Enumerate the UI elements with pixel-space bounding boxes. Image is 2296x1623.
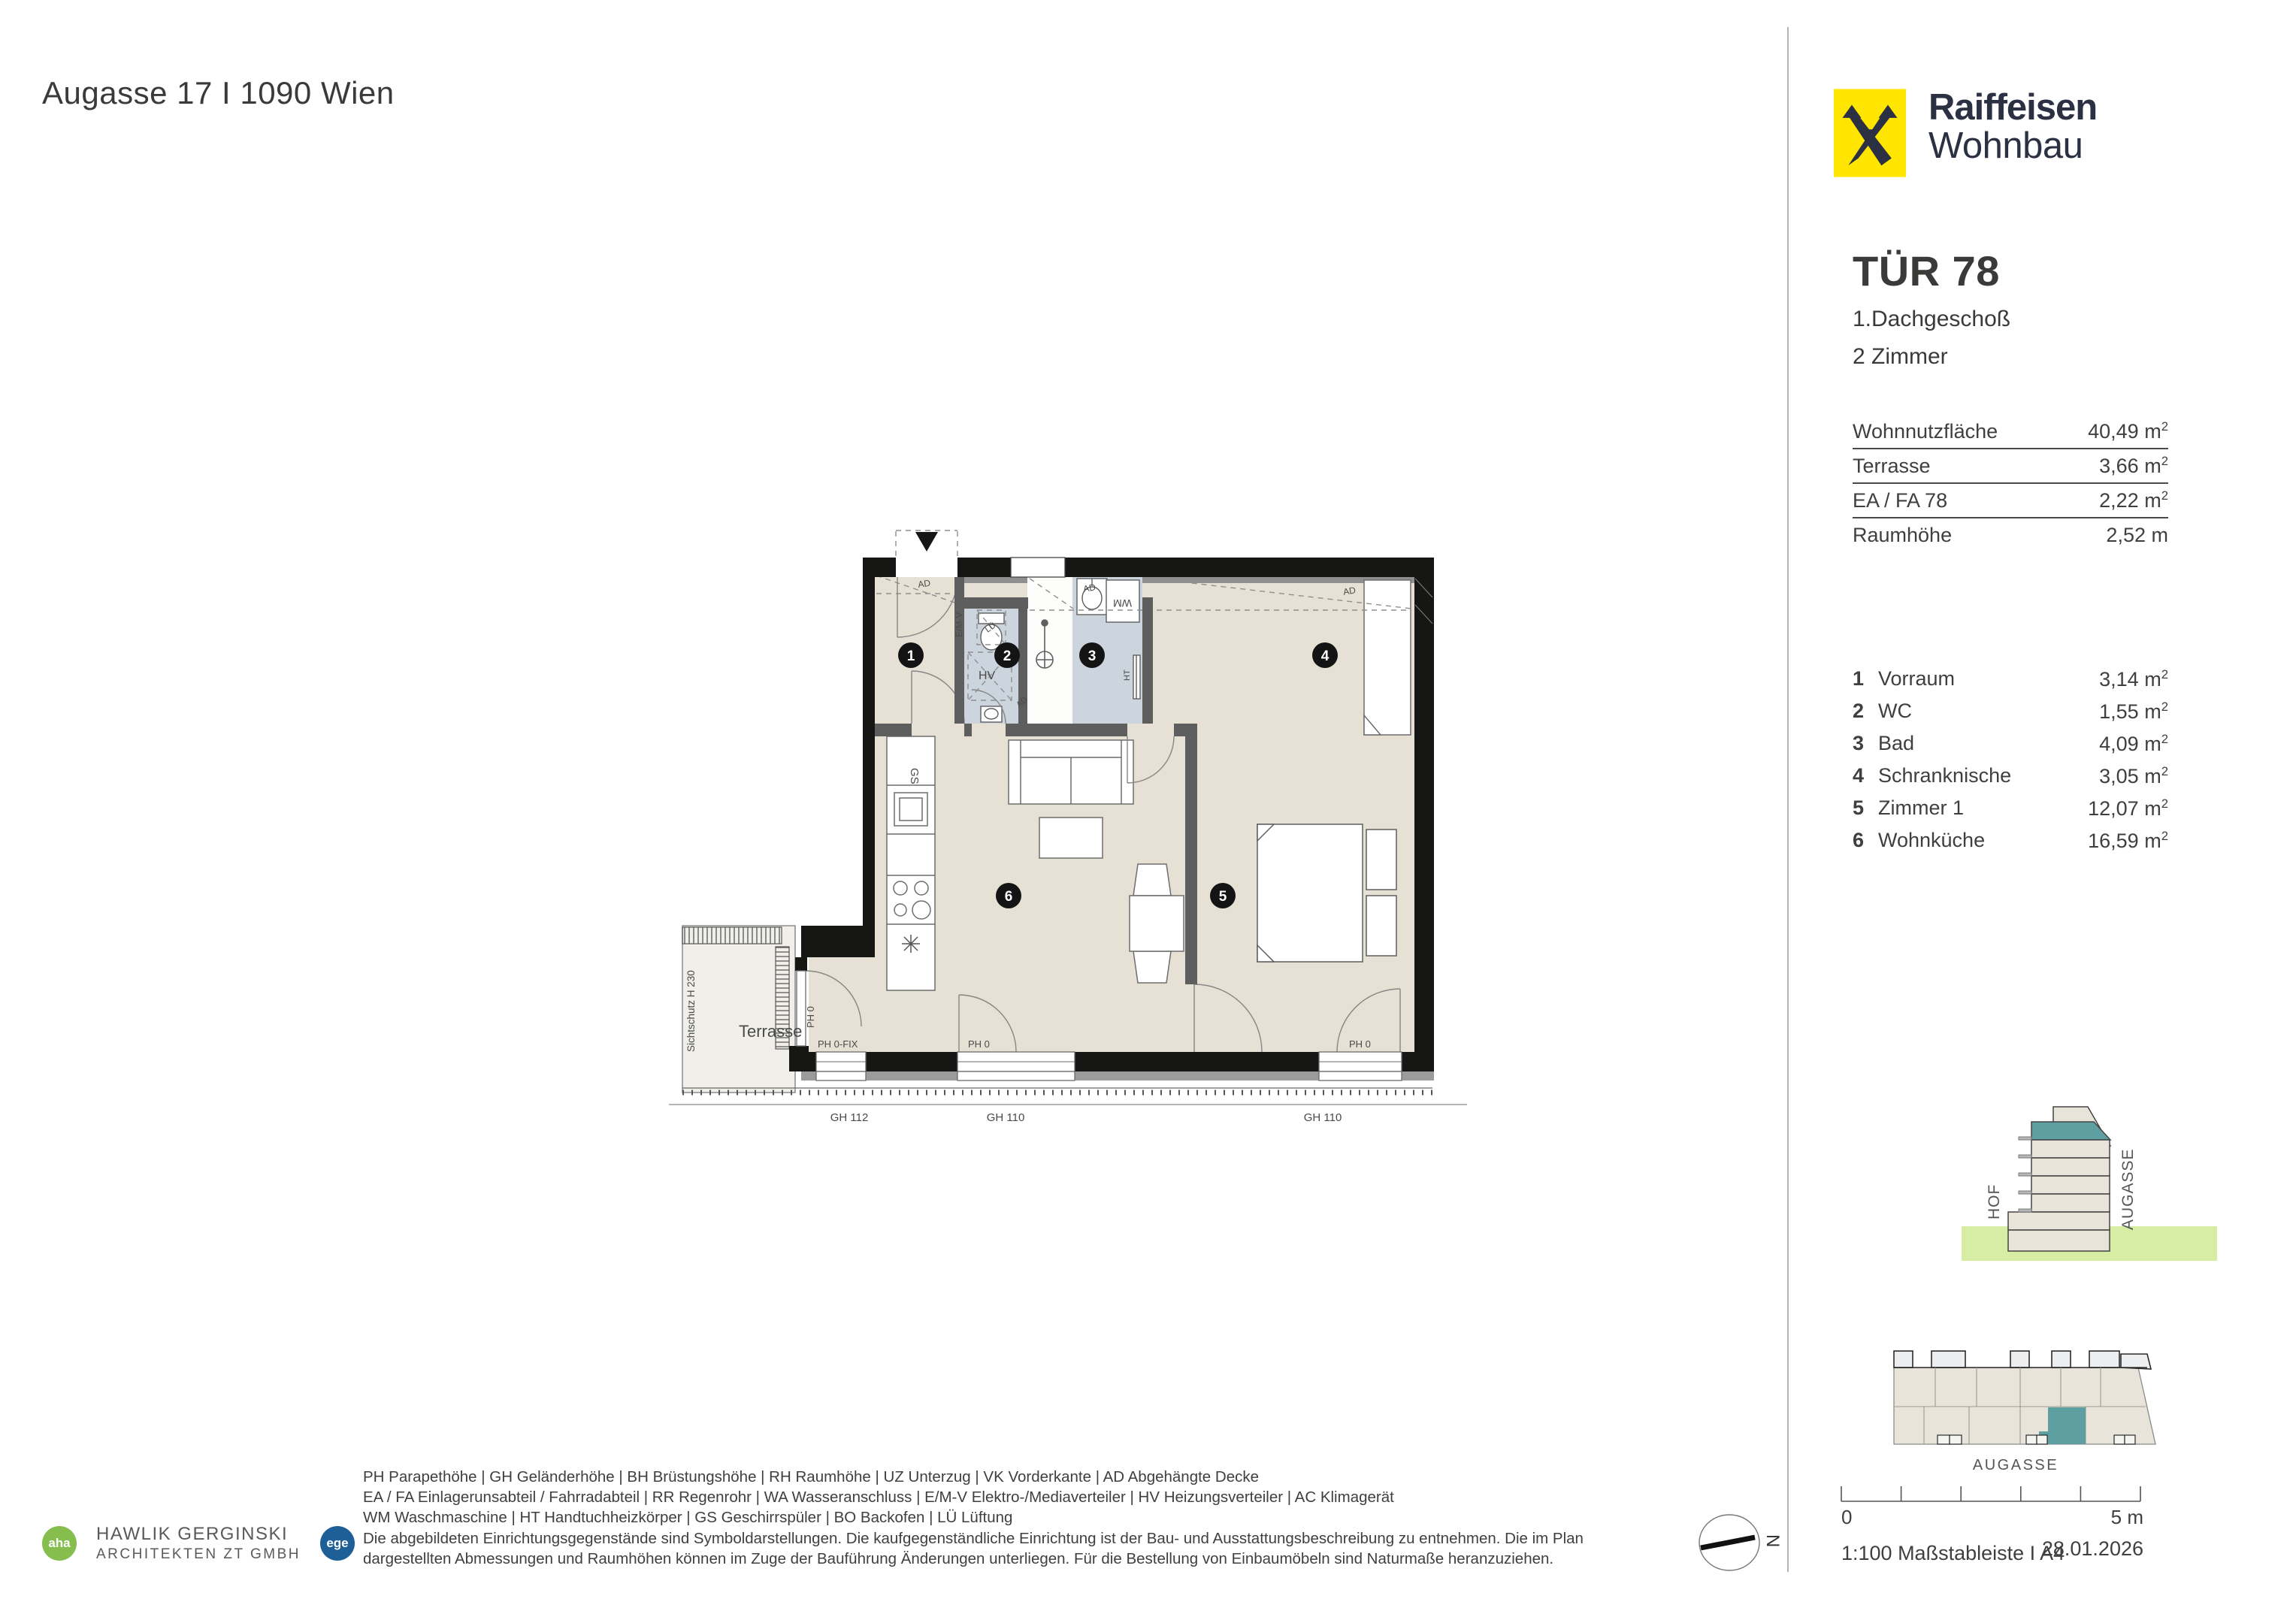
sofa-icon bbox=[1009, 740, 1133, 804]
list-item: 1 Vorraum 3,14 m2 bbox=[1853, 663, 2168, 695]
unit-floor: 1.Dachgeschoß bbox=[1853, 307, 2010, 332]
row-unit: m bbox=[2144, 489, 2161, 512]
ad-label: AD bbox=[1342, 585, 1357, 597]
balconies bbox=[2019, 1137, 2031, 1212]
terrace-label: Terrasse bbox=[739, 1022, 802, 1041]
room-unit: m bbox=[2144, 668, 2161, 691]
room-list: 1 Vorraum 3,14 m2 2 WC 1,55 m2 3 Bad 4,0… bbox=[1853, 663, 2168, 857]
room-unit-sup: 2 bbox=[2161, 796, 2168, 811]
list-item: 5 Zimmer 1 12,07 m2 bbox=[1853, 792, 2168, 824]
gh-label: GH 110 bbox=[1304, 1111, 1342, 1124]
room-area: 1,55 bbox=[2099, 700, 2139, 723]
privacy-screen-label: Sichtschutz H 230 bbox=[685, 970, 697, 1052]
room-unit-sup: 2 bbox=[2161, 829, 2168, 843]
plan-sheet: { "page": { "title": "Augasse 17 I 1090 … bbox=[0, 0, 2296, 1623]
row-label: EA / FA 78 bbox=[1853, 489, 1947, 512]
room-name: WC bbox=[1878, 700, 2099, 723]
list-item: 4 Schranknische 3,05 m2 bbox=[1853, 760, 2168, 792]
table-row: Terrasse 3,66 m2 bbox=[1853, 449, 2168, 484]
room-area: 12,07 bbox=[2088, 797, 2139, 820]
room-number: 4 bbox=[1853, 764, 1878, 787]
legend-line: Die abgebildeten Einrichtungsgegenstände… bbox=[363, 1528, 1686, 1549]
row-unit: m bbox=[2144, 420, 2161, 443]
floor-plan: Terrasse Sichtschutz H 230 PH 0 PH 0-FIX… bbox=[669, 526, 1481, 1187]
scale-bar-start: 0 bbox=[1841, 1506, 1852, 1529]
room-area: 4,09 bbox=[2099, 733, 2139, 755]
row-label: Wohnnutzfläche bbox=[1853, 420, 1998, 443]
roof-terraces bbox=[1894, 1351, 2151, 1369]
ph-label: PH 0 bbox=[805, 1006, 816, 1028]
room-marker-label: 1 bbox=[907, 648, 915, 664]
aha-logo: aha bbox=[42, 1526, 77, 1561]
room-number: 3 bbox=[1853, 732, 1878, 755]
room-number: 6 bbox=[1853, 829, 1878, 852]
table-row: EA / FA 78 2,22 m2 bbox=[1853, 484, 2168, 518]
terrace bbox=[682, 926, 795, 1093]
row-value: 40,49 bbox=[2088, 420, 2139, 443]
row-unit-sup: 2 bbox=[2161, 488, 2168, 503]
table-row: Wohnnutzfläche 40,49 m2 bbox=[1853, 415, 2168, 449]
legend-line: dargestellten Abmessungen und Raumhöhen … bbox=[363, 1549, 1686, 1569]
row-value: 3,66 bbox=[2099, 455, 2139, 477]
room-marker-label: 6 bbox=[1005, 889, 1013, 905]
site-plan-diagram: AUGASSE bbox=[1886, 1322, 2247, 1480]
ph-label: PH 0 bbox=[968, 1038, 990, 1050]
room-area: 3,05 bbox=[2099, 765, 2139, 787]
gh-label: GH 112 bbox=[830, 1111, 869, 1124]
wardrobe-icon bbox=[1364, 580, 1411, 735]
list-item: 2 WC 1,55 m2 bbox=[1853, 695, 2168, 727]
hof-label: HOF bbox=[1986, 1184, 2003, 1220]
room-marker-label: 2 bbox=[1003, 648, 1012, 664]
row-label: Terrasse bbox=[1853, 455, 1931, 478]
gh-label: GH 110 bbox=[987, 1111, 1025, 1124]
room-name: Zimmer 1 bbox=[1878, 796, 2088, 820]
entrance-arrow-icon bbox=[915, 532, 938, 552]
row-unit-sup: 2 bbox=[2161, 454, 2168, 468]
room-number: 5 bbox=[1853, 796, 1878, 820]
room-unit: m bbox=[2144, 700, 2161, 723]
panel-divider bbox=[1787, 27, 1789, 1572]
sink-icon bbox=[902, 935, 920, 953]
room-unit: m bbox=[2144, 733, 2161, 755]
room-name: Vorraum bbox=[1878, 667, 2099, 691]
room-unit-sup: 2 bbox=[2161, 764, 2168, 778]
room-number: 2 bbox=[1853, 700, 1878, 723]
row-value: 2,22 bbox=[2099, 489, 2139, 512]
area-summary-table: Wohnnutzfläche 40,49 m2 Terrasse 3,66 m2… bbox=[1853, 415, 2168, 552]
ad-label: AD bbox=[1082, 582, 1097, 594]
ph-label: PH 0 bbox=[1349, 1038, 1371, 1050]
list-item: 6 Wohnküche 16,59 m2 bbox=[1853, 824, 2168, 857]
brand-logo: Raiffeisen Wohnbau bbox=[1834, 89, 2097, 177]
row-unit: m bbox=[2152, 524, 2169, 546]
shaft-opening bbox=[1011, 558, 1065, 577]
augasse-label: AUGASSE bbox=[2119, 1148, 2137, 1230]
table-row: Raumhöhe 2,52 m bbox=[1853, 518, 2168, 552]
ad-label: AD bbox=[917, 578, 931, 590]
room-unit-sup: 2 bbox=[2161, 732, 2168, 746]
legend-line: PH Parapethöhe | GH Geländerhöhe | BH Br… bbox=[363, 1467, 1686, 1487]
abbreviation-legend: PH Parapethöhe | GH Geländerhöhe | BH Br… bbox=[363, 1467, 1686, 1569]
row-value: 2,52 bbox=[2106, 524, 2146, 546]
room-marker-label: 3 bbox=[1088, 648, 1097, 664]
list-item: 3 Bad 4,09 m2 bbox=[1853, 727, 2168, 760]
hv-label: HV bbox=[979, 669, 996, 682]
architect-credit: aha HAWLIK GERGINSKI ARCHITEKTEN ZT GMBH… bbox=[42, 1524, 355, 1563]
legend-line: EA / FA Einlagerunsabteil / Fahrradabtei… bbox=[363, 1487, 1686, 1507]
building-section-diagram: HOF AUGASSE bbox=[1954, 1071, 2296, 1266]
brand-name-bottom: Wohnbau bbox=[1928, 127, 2097, 165]
room-unit: m bbox=[2144, 830, 2161, 852]
emv-label: E/M-V bbox=[954, 612, 964, 637]
street-label: AUGASSE bbox=[1973, 1457, 2059, 1473]
unit-room-count: 2 Zimmer bbox=[1853, 344, 1948, 370]
unit-door-title: TÜR 78 bbox=[1853, 246, 2000, 295]
page-title: Augasse 17 I 1090 Wien bbox=[42, 75, 395, 111]
ph-fix-label: PH 0-FIX bbox=[818, 1038, 858, 1050]
wc-sink-icon bbox=[981, 706, 1002, 722]
plan-date: 28.01.2026 bbox=[1993, 1537, 2143, 1561]
architect-subtitle: ARCHITEKTEN ZT GMBH bbox=[96, 1546, 301, 1563]
architect-name: HAWLIK GERGINSKI bbox=[96, 1524, 301, 1545]
north-compass-icon: N bbox=[1695, 1509, 1785, 1578]
row-unit-sup: 2 bbox=[2161, 419, 2168, 434]
room-unit-sup: 2 bbox=[2161, 667, 2168, 682]
brand-name-top: Raiffeisen bbox=[1928, 89, 2097, 127]
scale-bar-end: 5 m bbox=[2068, 1506, 2143, 1529]
ege-logo: ege bbox=[320, 1526, 355, 1561]
room-area: 16,59 bbox=[2088, 830, 2139, 852]
room-name: Bad bbox=[1878, 732, 2099, 755]
legend-line: WM Waschmaschine | HT Handtuchheizkörper… bbox=[363, 1507, 1686, 1528]
ht-label: HT bbox=[1123, 669, 1132, 681]
room-unit: m bbox=[2144, 765, 2161, 787]
room-number: 1 bbox=[1853, 667, 1878, 691]
room-marker-label: 4 bbox=[1321, 648, 1330, 664]
room-unit-sup: 2 bbox=[2161, 700, 2168, 714]
towel-radiator-icon bbox=[1133, 655, 1140, 699]
raiffeisen-gable-cross-icon bbox=[1834, 89, 1906, 177]
compass-north-label: N bbox=[1762, 1534, 1783, 1547]
room-name: Wohnküche bbox=[1878, 829, 2088, 852]
room-area: 3,14 bbox=[2099, 668, 2139, 691]
coffee-table-icon bbox=[1039, 818, 1103, 858]
row-label: Raumhöhe bbox=[1853, 524, 1952, 547]
room-name: Schranknische bbox=[1878, 764, 2099, 787]
room-marker-label: 5 bbox=[1219, 889, 1227, 905]
wm-label: WM bbox=[1113, 597, 1132, 609]
room-unit: m bbox=[2144, 797, 2161, 820]
scale-bar bbox=[1840, 1485, 2145, 1504]
row-unit: m bbox=[2144, 455, 2161, 477]
gs-label: GS bbox=[908, 768, 921, 784]
